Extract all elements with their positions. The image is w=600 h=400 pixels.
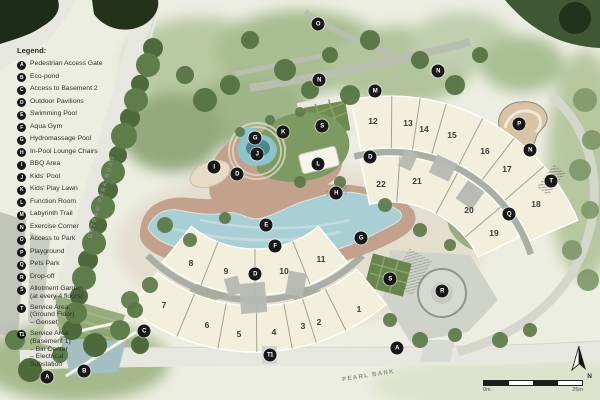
map-badge: L (312, 158, 325, 171)
legend-key-badge: H (17, 148, 26, 157)
legend-item-label: Aqua Gym (30, 123, 62, 131)
legend-key-badge: E (17, 111, 26, 120)
legend-item: A Pedestrian Access Gate (17, 60, 125, 70)
north-arrow: N (566, 344, 594, 382)
legend-key-badge: M (17, 211, 26, 220)
map-badge-letter: I (213, 164, 214, 170)
map-badge: N (524, 144, 537, 157)
legend-key-letter: T (20, 306, 23, 312)
legend-key-badge: F (17, 123, 26, 132)
legend-item: L Function Room (17, 198, 125, 208)
map-badge-letter: O (316, 21, 320, 27)
map-badge: R (436, 285, 449, 298)
map-badge: T (545, 175, 558, 188)
legend-item-label: Kids' Play Lawn (30, 185, 78, 193)
map-badge-letter: F (273, 243, 276, 249)
building-number: 6 (205, 320, 210, 330)
north-label: N (587, 373, 592, 380)
map-badge: S (384, 273, 397, 286)
building-number: 4 (272, 327, 277, 337)
legend-item-label: Pedestrian Access Gate (30, 60, 103, 68)
building-number: 19 (489, 228, 498, 238)
north-arrow-icon (566, 344, 594, 374)
building-number: 2 (317, 317, 322, 327)
map-badge-letter: S (388, 276, 392, 282)
building-number: 21 (412, 176, 421, 186)
legend-item: N Exercise Corner (17, 223, 125, 233)
map-badge-letter: B (82, 368, 86, 374)
map-badge: M (369, 85, 382, 98)
legend-item-label: Hydromassage Pool (30, 135, 91, 143)
map-badge-letter: M (373, 88, 378, 94)
map-badge: B (78, 365, 91, 378)
building-number: 8 (189, 258, 194, 268)
building-number: 17 (502, 164, 511, 174)
legend-item: T Service Area (Ground Floor) – Genset (17, 304, 125, 327)
legend-key-letter: M (20, 212, 24, 218)
legend-key-badge: Q (17, 261, 26, 270)
legend-key-letter: K (20, 187, 23, 193)
building-number: 20 (464, 205, 473, 215)
legend-item: T1 Service Area (Basement 1) – Bin Cente… (17, 330, 125, 369)
map-badge-letter: E (264, 222, 268, 228)
legend-key-badge: J (17, 173, 26, 182)
legend-key-letter: R (20, 275, 23, 281)
building-number: 13 (403, 118, 412, 128)
map-badge: N (432, 65, 445, 78)
legend-item: H In-Pool Lounge Chairs (17, 148, 125, 158)
legend-item-label: Access to Park (30, 235, 75, 243)
map-badge: N (313, 74, 326, 87)
legend-item: O Access to Park (17, 235, 125, 245)
legend-key-badge: S (17, 286, 26, 295)
legend-key-letter: D (20, 100, 23, 106)
map-badge-letter: K (281, 129, 285, 135)
legend-key-badge: R (17, 273, 26, 282)
legend-item: M Labyrinth Trail (17, 210, 125, 220)
building-number: 18 (531, 199, 540, 209)
building-number: 15 (447, 130, 456, 140)
map-badge: O (312, 18, 325, 31)
legend-key-letter: O (20, 237, 23, 243)
scale-start-label: 0m (483, 387, 491, 393)
map-badge: I (208, 161, 221, 174)
legend-item-label: Labyrinth Trail (30, 210, 73, 218)
legend-item-label: Service Area (Basement 1) – Bin Center –… (30, 330, 71, 369)
map-badge: P (513, 118, 526, 131)
legend-item: P Playground (17, 248, 125, 258)
legend-key-badge: C (17, 86, 26, 95)
legend-item: D Outdoor Pavilions (17, 98, 125, 108)
legend-key-letter: E (20, 112, 23, 118)
legend-item-label: Kids' Pool (30, 173, 60, 181)
legend-key-letter: S (20, 287, 23, 293)
scale-end-label: 25m (572, 387, 583, 393)
legend-key-badge: N (17, 223, 26, 232)
legend-key-letter: F (20, 125, 23, 131)
legend-key-badge: D (17, 98, 26, 107)
legend-key-badge: O (17, 236, 26, 245)
legend-key-badge: G (17, 136, 26, 145)
legend-key-badge: T1 (17, 330, 26, 339)
legend-item-label: Access to Basement 2 (30, 85, 98, 93)
map-badge: G (355, 232, 368, 245)
legend-key-badge: L (17, 198, 26, 207)
map-badge-letter: C (142, 328, 146, 334)
legend-key-letter: B (20, 75, 23, 81)
building-number: 5 (237, 329, 242, 339)
map-badge-letter: H (334, 190, 338, 196)
legend-key-letter: Q (20, 262, 23, 268)
building-number: 1 (357, 304, 362, 314)
legend-item-label: Pets Park (30, 260, 59, 268)
map-badge: A (391, 342, 404, 355)
legend-item: K Kids' Play Lawn (17, 185, 125, 195)
legend-key-letter: L (20, 200, 23, 206)
legend-item-label: Outdoor Pavilions (30, 98, 84, 106)
legend-item-label: Drop-off (30, 273, 54, 281)
map-badge: Q (503, 208, 516, 221)
legend-panel: Legend: A Pedestrian Access Gate B Eco-p… (17, 46, 125, 369)
legend-key-letter: N (20, 225, 23, 231)
map-badge-letter: J (256, 151, 259, 157)
legend-item-label: Function Room (30, 198, 76, 206)
legend-key-letter: C (20, 87, 23, 93)
map-badge-letter: A (395, 345, 399, 351)
map-badge: E (260, 219, 273, 232)
map-badge: J (251, 148, 264, 161)
map-badge: C (138, 325, 151, 338)
legend-item-label: Playground (30, 248, 64, 256)
legend-key-badge: B (17, 73, 26, 82)
map-badge: F (269, 240, 282, 253)
legend-key-letter: I (21, 162, 22, 168)
map-badge-letter: N (528, 147, 532, 153)
legend-item: C Access to Basement 2 (17, 85, 125, 95)
legend-title: Legend: (17, 46, 125, 55)
site-plan-page: Legend: A Pedestrian Access Gate B Eco-p… (0, 0, 600, 400)
map-badge-letter: Q (507, 211, 511, 217)
map-badge: D (249, 268, 262, 281)
map-badge-letter: G (359, 235, 363, 241)
map-badge: A (41, 371, 54, 384)
legend-item-label: Allotment Garden (at every 4 floors) (30, 285, 83, 301)
legend-key-badge: A (17, 61, 26, 70)
building-number: 9 (224, 266, 229, 276)
map-badge-letter: D (368, 154, 372, 160)
map-badge: D (231, 168, 244, 181)
legend-item: S Allotment Garden (at every 4 floors) (17, 285, 125, 301)
legend-item-label: Eco-pond (30, 73, 59, 81)
map-badge-letter: T1 (267, 352, 273, 358)
legend-key-badge: T (17, 304, 26, 313)
map-badge-letter: D (235, 171, 239, 177)
legend-key-letter: G (20, 137, 23, 143)
legend-key-letter: H (20, 150, 23, 156)
map-badge: T1 (264, 349, 277, 362)
building-number: 10 (279, 266, 288, 276)
legend-key-letter: P (20, 250, 23, 256)
building-number: 22 (376, 179, 385, 189)
legend-item-label: Swimming Pool (30, 110, 77, 118)
building-number: 11 (317, 254, 326, 264)
legend-item-label: BBQ Area (30, 160, 60, 168)
map-badge-letter: R (440, 288, 444, 294)
legend-item-label: Service Area (Ground Floor) – Genset (30, 304, 75, 327)
building-number: 12 (368, 116, 377, 126)
legend-item: R Drop-off (17, 273, 125, 283)
map-badge: D (364, 151, 377, 164)
map-badge-letter: L (316, 161, 319, 167)
map-badge-letter: D (253, 271, 257, 277)
legend-item-label: In-Pool Lounge Chairs (30, 148, 98, 156)
legend-item: B Eco-pond (17, 73, 125, 83)
building-number: 7 (162, 300, 167, 310)
map-badge-letter: P (517, 121, 521, 127)
map-badge-letter: A (45, 374, 49, 380)
legend-key-letter: J (20, 175, 22, 181)
legend-key-badge: I (17, 161, 26, 170)
building-number: 14 (419, 124, 428, 134)
legend-item: Q Pets Park (17, 260, 125, 270)
building-number: 3 (301, 321, 306, 331)
map-badge-letter: N (317, 77, 321, 83)
legend-key-letter: A (20, 62, 23, 68)
map-badge: G (249, 132, 262, 145)
map-badge-letter: S (320, 123, 324, 129)
map-badge-letter: T (549, 178, 552, 184)
legend-items: A Pedestrian Access Gate B Eco-pond C Ac… (17, 60, 125, 369)
legend-item-label: Exercise Corner (30, 223, 79, 231)
map-badge-letter: G (253, 135, 257, 141)
legend-item: F Aqua Gym (17, 123, 125, 133)
legend-key-badge: K (17, 186, 26, 195)
legend-item: E Swimming Pool (17, 110, 125, 120)
map-badge: H (330, 187, 343, 200)
legend-key-badge: P (17, 248, 26, 257)
legend-item: G Hydromassage Pool (17, 135, 125, 145)
map-badge: K (277, 126, 290, 139)
map-badge: S (316, 120, 329, 133)
map-badge-letter: N (436, 68, 440, 74)
building-number: 16 (480, 146, 489, 156)
legend-key-letter: T1 (19, 332, 24, 338)
